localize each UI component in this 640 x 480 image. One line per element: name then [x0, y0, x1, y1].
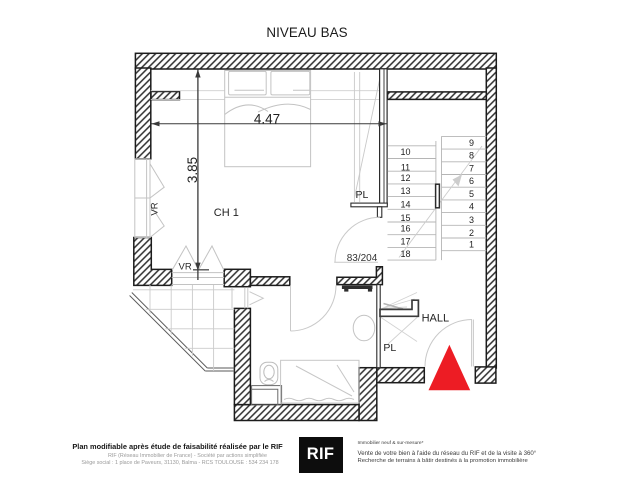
svg-text:VR: VR [150, 202, 161, 215]
svg-text:13: 13 [400, 186, 410, 196]
svg-text:9: 9 [469, 138, 474, 148]
svg-text:4: 4 [469, 202, 474, 212]
svg-text:4.47: 4.47 [254, 111, 280, 126]
svg-text:14: 14 [400, 199, 410, 209]
svg-text:5: 5 [469, 189, 474, 199]
svg-text:3.85: 3.85 [185, 157, 200, 183]
svg-text:6: 6 [469, 176, 474, 186]
svg-text:1: 1 [469, 240, 474, 250]
svg-text:15: 15 [400, 213, 410, 223]
svg-text:17: 17 [400, 237, 410, 247]
svg-text:PL: PL [383, 342, 396, 354]
svg-text:10: 10 [400, 147, 410, 157]
svg-text:HALL: HALL [422, 313, 450, 325]
svg-text:VR: VR [179, 261, 192, 272]
svg-text:PL: PL [356, 189, 369, 201]
svg-text:16: 16 [400, 224, 410, 234]
svg-text:83/204: 83/204 [347, 253, 378, 264]
svg-text:12: 12 [400, 173, 410, 183]
svg-text:2: 2 [469, 228, 474, 238]
svg-text:7: 7 [469, 163, 474, 173]
svg-text:CH 1: CH 1 [214, 207, 239, 219]
svg-text:11: 11 [401, 162, 410, 172]
svg-text:18: 18 [400, 249, 410, 259]
svg-text:3: 3 [469, 215, 474, 225]
svg-text:8: 8 [469, 151, 474, 161]
